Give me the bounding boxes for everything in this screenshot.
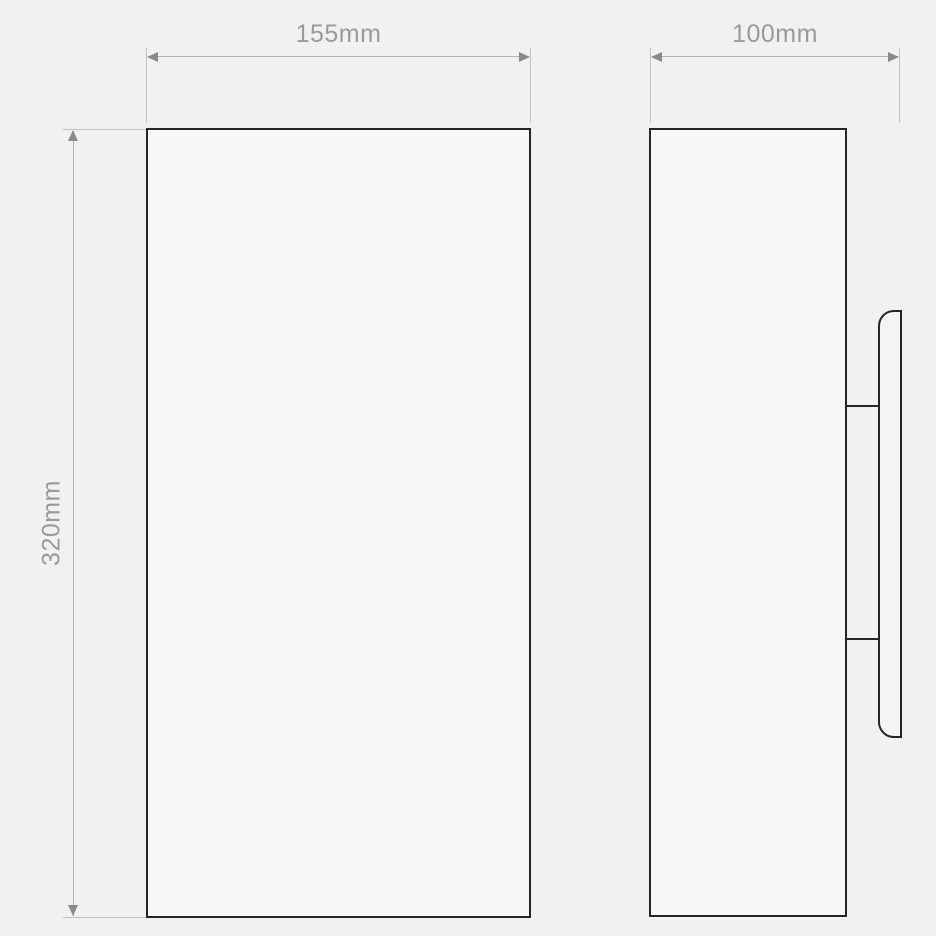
mounting-arm-top (845, 405, 880, 407)
technical-drawing: 155mm 100mm 320mm (0, 0, 936, 936)
arrow-right-icon (888, 52, 899, 62)
mounting-arm-bottom (845, 638, 880, 640)
front-view-outline (146, 128, 531, 918)
dimension-line (652, 56, 898, 57)
arrow-right-icon (519, 52, 530, 62)
arrow-left-icon (651, 52, 662, 62)
arrow-down-icon (68, 905, 78, 916)
dimension-width-label: 155mm (146, 20, 531, 49)
arrow-left-icon (147, 52, 158, 62)
dimension-line (73, 131, 74, 916)
dimension-depth-label: 100mm (650, 20, 900, 49)
extension-line (899, 48, 900, 123)
wall-mounting-plate (878, 310, 902, 738)
dimension-height-label: 320mm (38, 480, 67, 566)
dimension-line (148, 56, 529, 57)
arrow-up-icon (68, 130, 78, 141)
side-view-outline (649, 128, 847, 917)
extension-line (63, 917, 146, 918)
extension-line (530, 48, 531, 123)
